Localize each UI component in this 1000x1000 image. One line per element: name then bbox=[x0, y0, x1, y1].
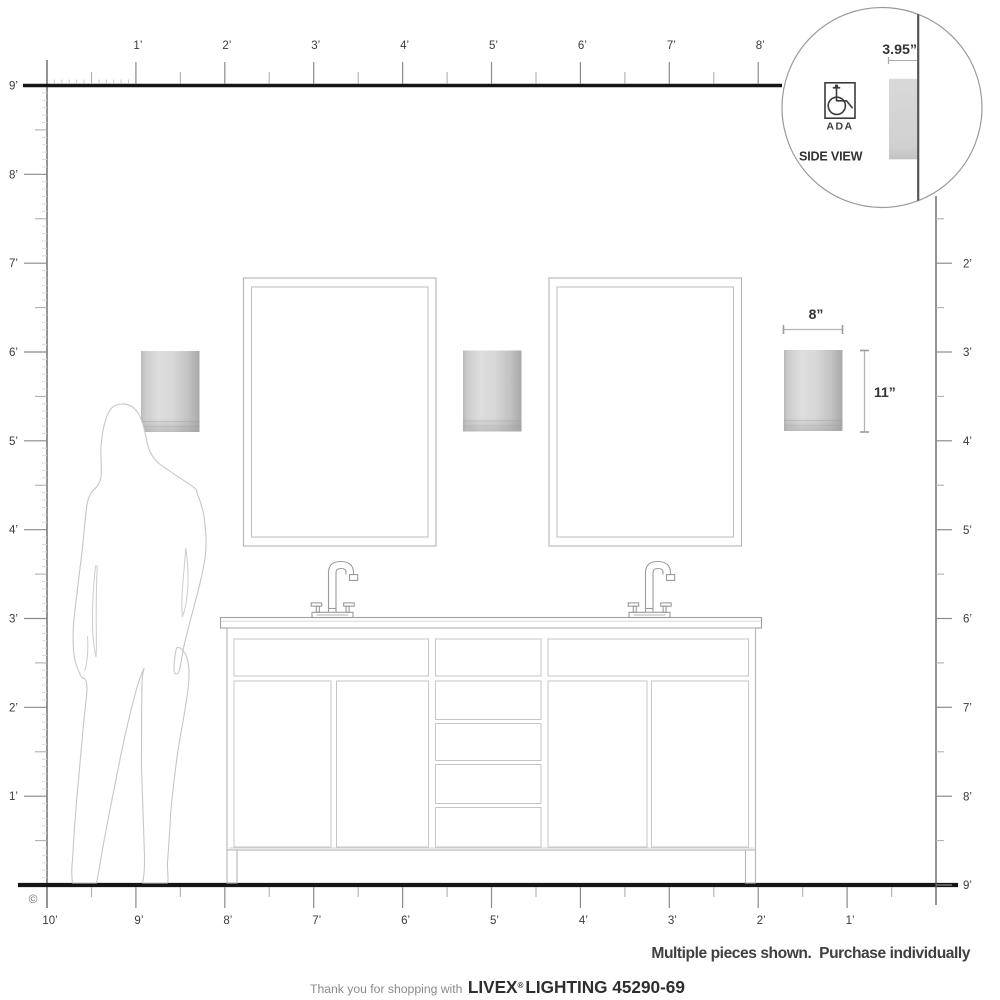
svg-text:1’: 1’ bbox=[133, 40, 142, 52]
svg-text:3’: 3’ bbox=[668, 915, 677, 927]
svg-text:SIDE VIEW: SIDE VIEW bbox=[799, 150, 863, 164]
svg-text:7’: 7’ bbox=[667, 40, 676, 52]
svg-text:6’: 6’ bbox=[401, 915, 410, 927]
svg-text:8”: 8” bbox=[809, 306, 824, 322]
svg-text:4’: 4’ bbox=[963, 436, 972, 448]
svg-text:6’: 6’ bbox=[578, 40, 587, 52]
svg-text:6’: 6’ bbox=[9, 347, 18, 359]
svg-text:7’: 7’ bbox=[9, 258, 18, 270]
svg-text:8’: 8’ bbox=[9, 169, 18, 181]
svg-text:7’: 7’ bbox=[312, 915, 321, 927]
svg-text:Thank you for shopping with LI: Thank you for shopping with LIVEX®LIGHTI… bbox=[310, 977, 685, 997]
svg-text:Multiple pieces shown. Purcha: Multiple pieces shown. Purchase individu… bbox=[651, 945, 970, 962]
svg-text:4’: 4’ bbox=[9, 525, 18, 537]
svg-text:ADA: ADA bbox=[826, 121, 853, 133]
svg-text:10’: 10’ bbox=[42, 915, 57, 927]
svg-text:2’: 2’ bbox=[222, 40, 231, 52]
svg-text:5’: 5’ bbox=[490, 915, 499, 927]
svg-text:3’: 3’ bbox=[9, 614, 18, 626]
svg-text:3’: 3’ bbox=[963, 347, 972, 359]
svg-text:4’: 4’ bbox=[400, 40, 409, 52]
svg-text:1’: 1’ bbox=[846, 915, 855, 927]
svg-text:7’: 7’ bbox=[963, 703, 972, 715]
svg-text:3.95”: 3.95” bbox=[882, 42, 917, 58]
svg-text:6’: 6’ bbox=[963, 614, 972, 626]
svg-text:9’: 9’ bbox=[9, 81, 18, 93]
svg-text:5’: 5’ bbox=[9, 436, 18, 448]
svg-text:2’: 2’ bbox=[757, 915, 766, 927]
svg-text:11”: 11” bbox=[874, 384, 896, 400]
svg-text:©: © bbox=[29, 892, 38, 906]
svg-text:2’: 2’ bbox=[9, 702, 18, 714]
svg-text:8’: 8’ bbox=[223, 915, 232, 927]
svg-text:2’: 2’ bbox=[963, 258, 972, 270]
svg-text:5’: 5’ bbox=[963, 525, 972, 537]
svg-text:3’: 3’ bbox=[311, 40, 320, 52]
svg-text:8’: 8’ bbox=[756, 40, 765, 52]
svg-text:8’: 8’ bbox=[963, 791, 972, 803]
svg-text:5’: 5’ bbox=[489, 40, 498, 52]
svg-text:1’: 1’ bbox=[9, 791, 18, 803]
svg-text:4’: 4’ bbox=[579, 915, 588, 927]
svg-text:9’: 9’ bbox=[134, 915, 143, 927]
svg-text:9’: 9’ bbox=[963, 880, 972, 892]
